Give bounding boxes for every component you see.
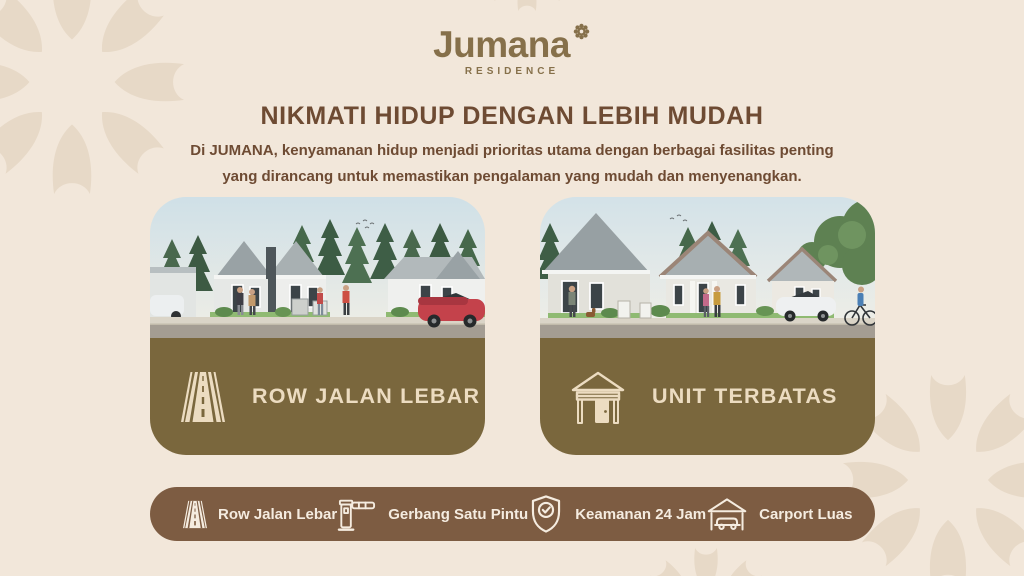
feature-gerbang-satu-pintu: Gerbang Satu Pintu xyxy=(337,495,528,533)
carport-icon xyxy=(706,495,748,533)
house-unit-icon xyxy=(571,368,625,426)
card-unit-terbatas: UNIT TERBATAS xyxy=(540,197,875,455)
logo-title: Jumana xyxy=(433,26,570,63)
shield-check-icon xyxy=(528,494,564,534)
feature-label: Row Jalan Lebar xyxy=(218,506,337,523)
card-label: ROW JALAN LEBAR xyxy=(252,384,480,409)
flyer-canvas: Jumana RESIDENCE NIKMATI HIDUP DENGAN LE… xyxy=(0,0,1024,576)
flower-gear-icon xyxy=(572,22,591,41)
card-panel-unit-terbatas: UNIT TERBATAS xyxy=(540,338,875,455)
description-line-1: Di JUMANA, kenyamanan hidup menjadi prio… xyxy=(190,142,833,159)
feature-label: Carport Luas xyxy=(759,506,852,523)
card-label: UNIT TERBATAS xyxy=(652,384,838,409)
houses-illustration-left xyxy=(150,197,485,338)
feature-row-jalan-lebar: Row Jalan Lebar xyxy=(183,499,337,530)
card-row-jalan-lebar: ROW JALAN LEBAR xyxy=(150,197,485,455)
card-panel-row-jalan-lebar: ROW JALAN LEBAR xyxy=(150,338,485,455)
description-line-2: yang dirancang untuk memastikan pengalam… xyxy=(222,168,801,185)
feature-label: Gerbang Satu Pintu xyxy=(388,506,528,523)
houses-illustration-right xyxy=(540,197,875,338)
feature-keamanan-24-jam: Keamanan 24 Jam xyxy=(528,494,706,534)
feature-label: Keamanan 24 Jam xyxy=(575,506,706,523)
road-icon xyxy=(183,499,207,530)
features-bar: Row Jalan Lebar Gerbang Satu Pintu xyxy=(150,487,875,541)
logo: Jumana RESIDENCE xyxy=(0,26,1024,77)
page-title: NIKMATI HIDUP DENGAN LEBIH MUDAH xyxy=(0,102,1024,131)
road-icon xyxy=(181,369,225,425)
page-description: Di JUMANA, kenyamanan hidup menjadi prio… xyxy=(162,138,862,189)
logo-subtitle: RESIDENCE xyxy=(0,66,1024,77)
gate-barrier-icon xyxy=(337,495,377,533)
feature-carport-luas: Carport Luas xyxy=(706,495,852,533)
